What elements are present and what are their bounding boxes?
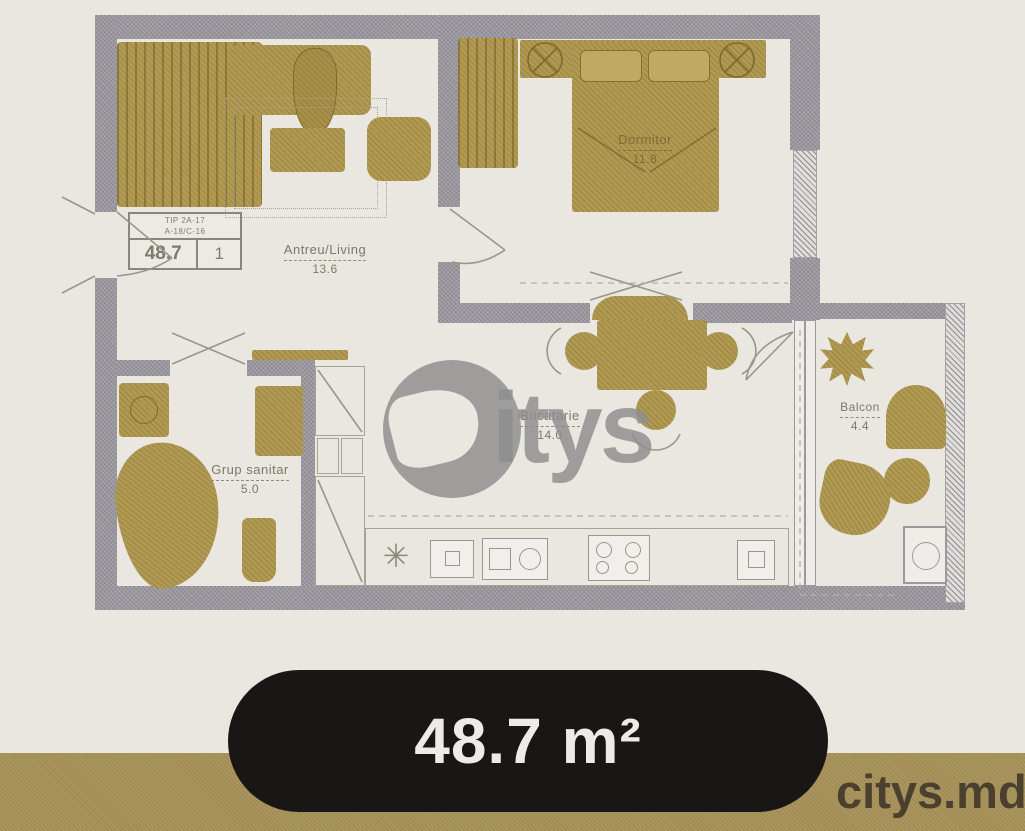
wardrobe-bedroom xyxy=(458,38,518,168)
dining-chair-top xyxy=(592,296,688,320)
washbasin xyxy=(255,386,303,456)
wall-bedroom-right-lower xyxy=(790,258,820,320)
area-badge-text: 48.7 m² xyxy=(414,704,642,778)
burner-4 xyxy=(625,561,638,574)
balcony-area: 4.4 xyxy=(820,419,900,435)
hall-closet-top xyxy=(315,366,365,436)
plan-info-box: TIP 2A-17 A-18/C-16 48.7 1 xyxy=(128,212,242,270)
appliance-inner xyxy=(748,551,765,568)
dining-chair-right xyxy=(700,332,738,370)
hall-closet-bottom xyxy=(315,476,365,586)
pillow-left xyxy=(580,50,642,82)
info-box-line1: TIP 2A-17 xyxy=(130,215,240,226)
wall-bedroom-right-upper xyxy=(790,15,820,150)
balcony-right-window-wall xyxy=(945,303,965,603)
citys-watermark-text: itys xyxy=(492,378,652,478)
balcony-side-table xyxy=(884,458,930,504)
living-name: Antreu/Living xyxy=(284,242,366,261)
citys-logo-cutout xyxy=(383,380,486,473)
bathtub xyxy=(110,437,227,593)
room-label-bedroom: Dormitor 11.8 xyxy=(585,132,705,167)
kitchen-sink-double xyxy=(482,538,548,580)
balcony-plant xyxy=(820,332,874,386)
pillow-right xyxy=(648,50,710,82)
living-area: 13.6 xyxy=(245,262,405,278)
wall-balcony-top xyxy=(818,303,965,319)
sink-basin-right xyxy=(519,548,541,570)
info-box-line2: A-18/C-16 xyxy=(130,226,240,237)
burner-2 xyxy=(625,542,641,558)
wall-middle-vertical-upper xyxy=(438,15,460,207)
room-label-living: Antreu/Living 13.6 xyxy=(245,242,405,277)
room-label-balcony: Balcon 4.4 xyxy=(820,400,900,434)
wall-bottom xyxy=(95,586,965,610)
balcony-ac-unit xyxy=(903,526,947,584)
balcony-partition-window xyxy=(794,320,816,586)
floorplan-photo: { "info_box": { "line1": "TIP 2A-17", "l… xyxy=(0,0,1025,831)
wall-bathroom-top-left xyxy=(117,360,170,376)
wall-kitchen-top-right xyxy=(693,303,792,323)
bathroom-door-lintel xyxy=(252,350,348,360)
citys-md-wordmark: citys.md xyxy=(836,764,1025,819)
toilet xyxy=(242,518,276,582)
burner-3 xyxy=(596,561,609,574)
wall-bathroom-top-right xyxy=(247,360,303,376)
cooker-hood-icon: ✳ xyxy=(378,538,414,574)
kitchen-counter xyxy=(365,528,789,586)
info-box-count: 1 xyxy=(196,240,240,268)
hob-icon xyxy=(588,535,650,581)
bedroom-area: 11.8 xyxy=(585,152,705,168)
washing-machine xyxy=(119,383,169,437)
sink-basin xyxy=(445,551,460,566)
wall-kitchen-top-left xyxy=(438,303,590,323)
bathroom-name: Grup sanitar xyxy=(211,462,289,481)
bedroom-window xyxy=(793,150,817,258)
hall-closet-shelf-right xyxy=(341,438,363,474)
bedroom-name: Dormitor xyxy=(618,132,672,151)
hall-closet-shelf-left xyxy=(317,438,339,474)
armchair-living xyxy=(367,117,431,181)
sink-basin-left xyxy=(489,548,511,570)
ac-unit-fan xyxy=(912,542,940,570)
balcony-name: Balcon xyxy=(840,400,880,418)
dining-chair-left xyxy=(565,332,603,370)
coffee-table xyxy=(270,128,345,172)
wall-left-upper xyxy=(95,15,117,212)
burner-1 xyxy=(596,542,612,558)
balcony-fan-chair xyxy=(813,457,896,542)
bathroom-area: 5.0 xyxy=(190,482,310,498)
room-label-bathroom: Grup sanitar 5.0 xyxy=(190,462,310,497)
wall-left-lower xyxy=(95,278,117,610)
info-box-area: 48.7 xyxy=(130,240,196,268)
area-badge: 48.7 m² xyxy=(228,670,828,812)
kitchen-appliance-icon xyxy=(737,540,775,580)
washing-machine-drum xyxy=(130,396,158,424)
kitchen-sink-single xyxy=(430,540,474,578)
